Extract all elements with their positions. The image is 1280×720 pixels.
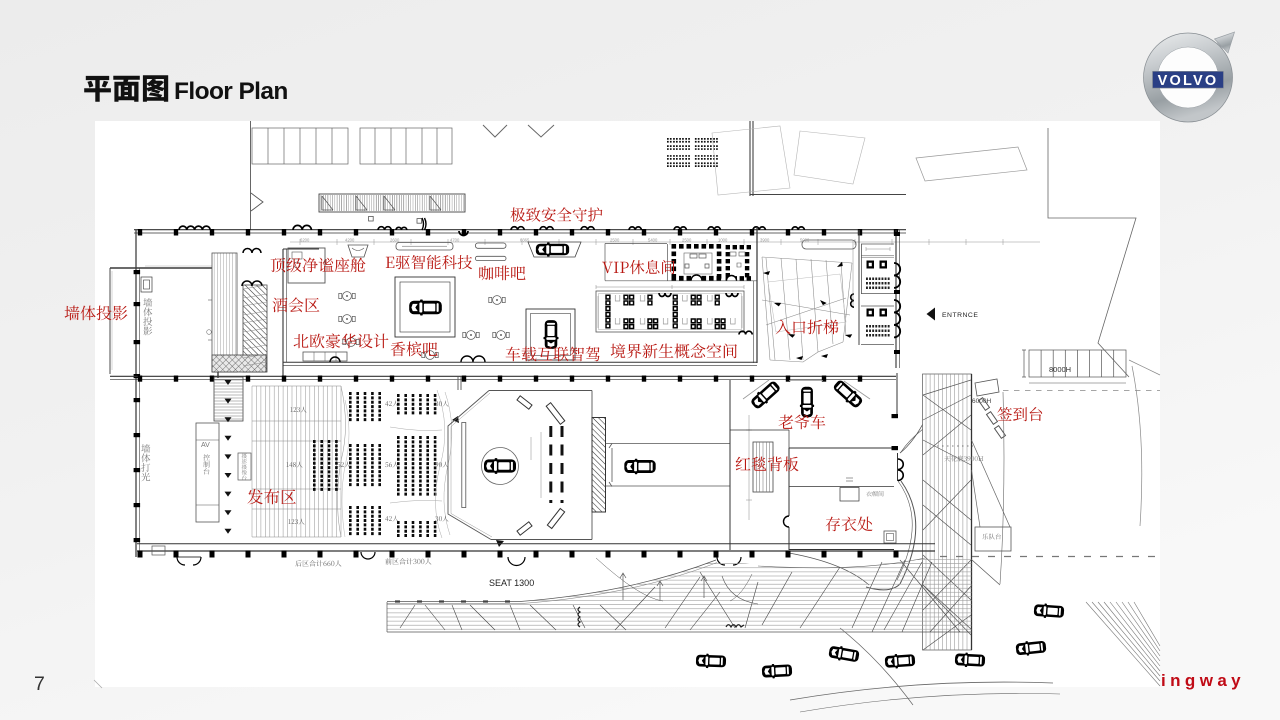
svg-text:6365: 6365 [520,238,530,243]
svg-text:8000H: 8000H [1049,365,1071,374]
svg-text:4200: 4200 [345,238,355,243]
svg-text:ingway: ingway [1161,671,1245,690]
svg-text:5400: 5400 [648,238,658,243]
svg-text:5000: 5000 [800,238,810,243]
svg-text:VOLVO: VOLVO [1158,73,1219,89]
svg-text:2500: 2500 [682,238,692,243]
svg-text:AV: AV [201,442,210,449]
svg-text:2500: 2500 [610,238,620,243]
svg-text:Floor Plan: Floor Plan [174,78,288,105]
svg-text:6200: 6200 [300,238,310,243]
svg-text:6000H: 6000H [972,398,991,405]
svg-text:1000: 1000 [718,238,728,243]
svg-text:3900: 3900 [760,238,770,243]
svg-text:7: 7 [34,673,45,695]
svg-text:2600: 2600 [390,238,400,243]
svg-text:SEAT 1300: SEAT 1300 [489,578,534,588]
svg-text:4700: 4700 [450,238,460,243]
svg-text:ENTRNCE: ENTRNCE [942,312,978,319]
